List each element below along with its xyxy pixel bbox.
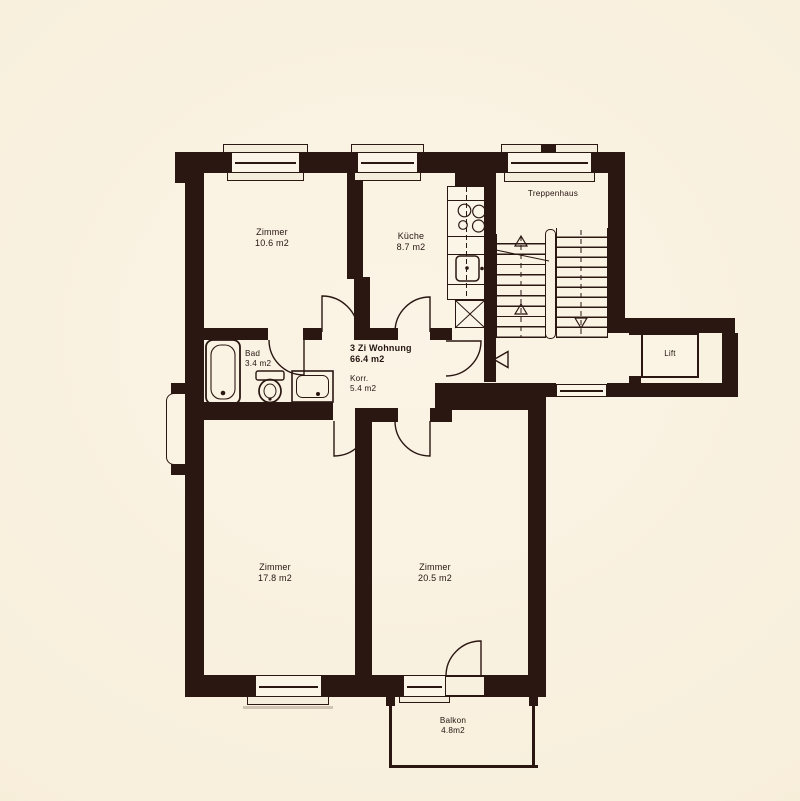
apartment-area: 66.4 m2 (350, 354, 412, 365)
room-area: 4.8m2 (410, 726, 496, 736)
room-name: Zimmer (237, 227, 307, 238)
room-name: Treppenhaus (508, 189, 598, 199)
room-name: Zimmer (400, 562, 470, 573)
bathtub-icon (206, 340, 240, 404)
room-label-zimmer-right: Zimmer 20.5 m2 (400, 562, 470, 585)
room-area: 20.5 m2 (400, 573, 470, 584)
room-area: 17.8 m2 (240, 573, 310, 584)
room-label-bad: Bad 3.4 m2 (245, 349, 271, 370)
apartment-name: 3 Zi Wohnung (350, 343, 412, 354)
room-name: Zimmer (240, 562, 310, 573)
room-area: 8.7 m2 (379, 242, 443, 253)
room-name: Bad (245, 349, 271, 359)
room-name: Küche (379, 231, 443, 242)
door-zimmer-right (395, 421, 430, 456)
room-label-treppenhaus: Treppenhaus (508, 189, 598, 199)
room-name: Lift (641, 349, 699, 359)
door-bad (269, 340, 304, 375)
floor-plan: Zimmer 10.6 m2 Küche 8.7 m2 Treppenhaus … (0, 0, 800, 801)
room-label-zimmer-top: Zimmer 10.6 m2 (237, 227, 307, 250)
room-label-zimmer-left: Zimmer 17.8 m2 (240, 562, 310, 585)
room-name: Korr. (350, 374, 376, 384)
stairs-marks (496, 230, 587, 338)
room-label-lift: Lift (641, 349, 699, 359)
door-entry (446, 341, 481, 376)
room-area: 10.6 m2 (237, 238, 307, 249)
room-label-kueche: Küche 8.7 m2 (379, 231, 443, 254)
sink-icon (456, 256, 484, 281)
room-name: Balkon (410, 716, 496, 726)
door-kueche (395, 297, 430, 332)
stove-icon (458, 204, 485, 232)
washbasin-icon (292, 371, 333, 402)
toilet-icon (256, 371, 284, 403)
apartment-title: 3 Zi Wohnung 66.4 m2 (350, 343, 412, 366)
plan-linework (0, 0, 800, 801)
room-area: 3.4 m2 (245, 359, 271, 369)
door-balkon (446, 641, 481, 676)
room-label-balkon: Balkon 4.8m2 (410, 716, 496, 737)
room-label-korridor: Korr. 5.4 m2 (350, 374, 376, 395)
room-area: 5.4 m2 (350, 384, 376, 394)
entry-direction-icon (494, 352, 508, 368)
kitchen-grid-lines (448, 187, 485, 328)
door-zimmer-left (334, 421, 369, 456)
door-zimmer-top (322, 296, 358, 332)
